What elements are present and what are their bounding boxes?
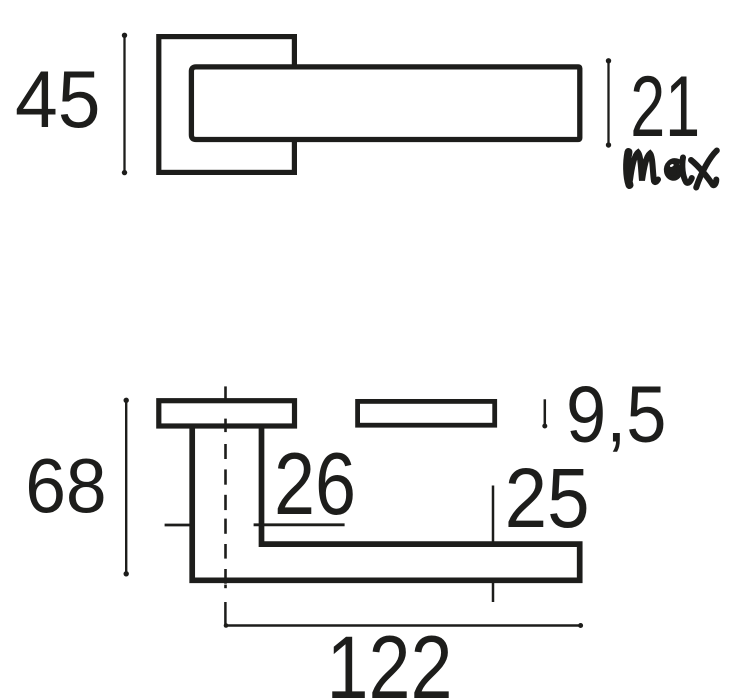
svg-text:25: 25 <box>505 451 590 545</box>
svg-text:68: 68 <box>25 444 107 530</box>
svg-text:9,5: 9,5 <box>566 370 667 459</box>
svg-text:122: 122 <box>327 617 453 699</box>
svg-text:26: 26 <box>274 434 356 533</box>
svg-text:21: 21 <box>630 59 700 155</box>
svg-text:45: 45 <box>15 55 101 145</box>
